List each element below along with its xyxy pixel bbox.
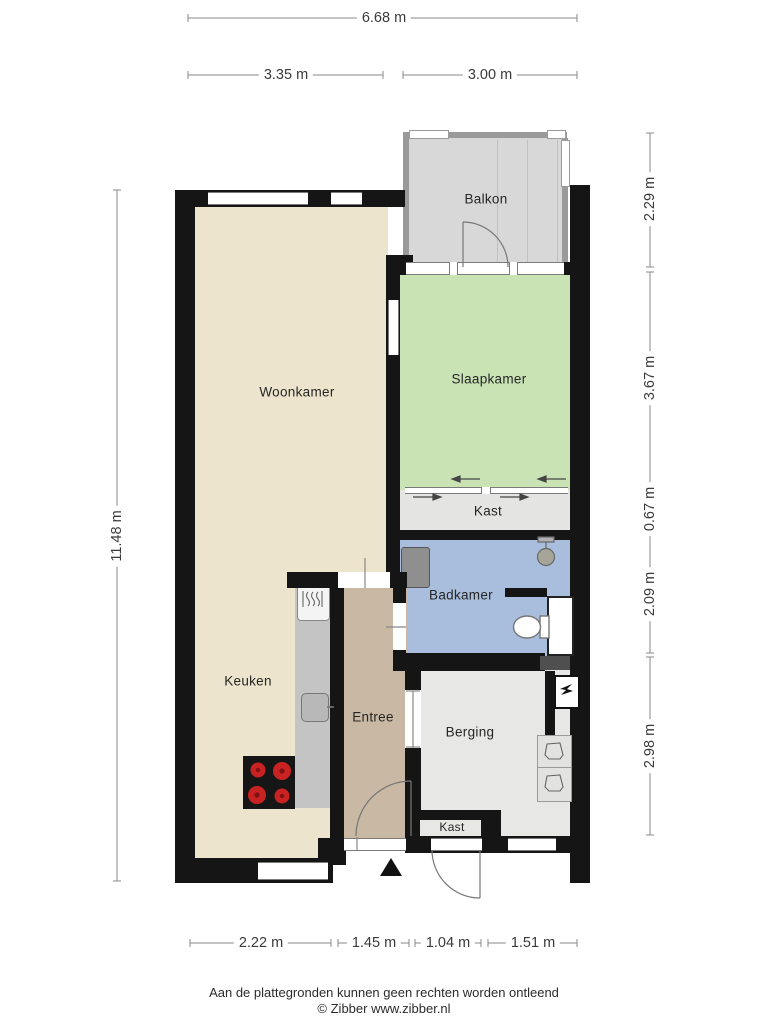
wall-kast-bottom-top <box>405 810 501 820</box>
room-label-berging: Berging <box>446 725 495 740</box>
dim-right-kast: 0.67 m <box>642 482 658 536</box>
door-opening-entree-berging <box>405 690 421 748</box>
sliding-door-center <box>481 487 491 494</box>
sink-icon <box>301 693 329 722</box>
dim-right-balkon: 2.29 m <box>642 172 658 226</box>
dim-right-berging: 2.98 m <box>642 719 658 773</box>
disclaimer-text: Aan de plattegronden kunnen geen rechten… <box>0 985 768 1000</box>
north-arrow-icon <box>380 858 402 876</box>
room-label-woonkamer: Woonkamer <box>259 385 334 400</box>
balkon-deck-line <box>557 140 558 262</box>
dim-bottom-berging: 1.51 m <box>506 935 560 951</box>
wall-left <box>175 190 195 883</box>
window-top-1 <box>208 192 308 205</box>
front-door-opening <box>431 838 482 851</box>
window-slaapkamer-side <box>388 300 399 355</box>
appliance-icon <box>537 767 572 802</box>
wall-kast-bottom-pier <box>481 820 501 836</box>
wall-badkamer-partition <box>505 588 547 597</box>
wall-badkamer-berging <box>393 653 545 671</box>
room-label-entree: Entree <box>352 710 394 725</box>
wall-kast-badkamer <box>400 530 570 540</box>
window-balkon-slaapkamer <box>406 262 564 275</box>
room-label-kast-top: Kast <box>474 504 502 519</box>
window-berging-front <box>508 838 556 851</box>
window-top-2 <box>331 192 362 205</box>
door-opening-woonkamer-entree <box>338 572 390 588</box>
dim-top-total: 6.68 m <box>357 10 411 26</box>
room-label-keuken: Keuken <box>224 674 272 689</box>
window-entree-front <box>344 838 406 851</box>
window-mullion <box>509 262 518 275</box>
room-label-badkamer: Badkamer <box>429 588 493 603</box>
stove-icon <box>243 756 295 809</box>
room-label-balkon: Balkon <box>464 192 507 207</box>
dim-bottom-kast: 1.04 m <box>421 935 475 951</box>
room-label-kast-bottom: Kast <box>439 820 464 834</box>
window-mullion <box>449 262 458 275</box>
mv-unit-icon <box>554 675 580 709</box>
dim-right-slaapkamer: 3.67 m <box>642 351 658 405</box>
balkon-rail-open-segment <box>561 140 570 187</box>
dim-bottom-woonkamer: 2.22 m <box>234 935 288 951</box>
wall-keuken-entree <box>330 572 344 842</box>
window-woonkamer-front <box>258 862 328 880</box>
balkon-rail-open-segment <box>409 130 449 139</box>
dim-top-right: 3.00 m <box>463 67 517 83</box>
copyright-text: © Zibber www.zibber.nl <box>0 1001 768 1016</box>
appliance-icon <box>537 735 572 769</box>
door-opening-entree-badkamer <box>393 603 406 650</box>
floor-plan: Balkon Woonkamer Slaapkamer Kast Badkame… <box>0 0 768 1024</box>
dim-top-left: 3.35 m <box>259 67 313 83</box>
dim-bottom-entree: 1.45 m <box>347 935 401 951</box>
wall-right <box>570 185 590 883</box>
room-label-slaapkamer: Slaapkamer <box>451 372 526 387</box>
badkamer-door-leaf <box>547 596 574 656</box>
dim-left-total: 11.48 m <box>109 505 125 566</box>
dim-right-badkamer: 2.09 m <box>642 567 658 621</box>
balkon-deck-line <box>527 140 528 262</box>
threshold-dark <box>540 656 570 670</box>
balkon-rail-open-segment <box>547 130 566 139</box>
